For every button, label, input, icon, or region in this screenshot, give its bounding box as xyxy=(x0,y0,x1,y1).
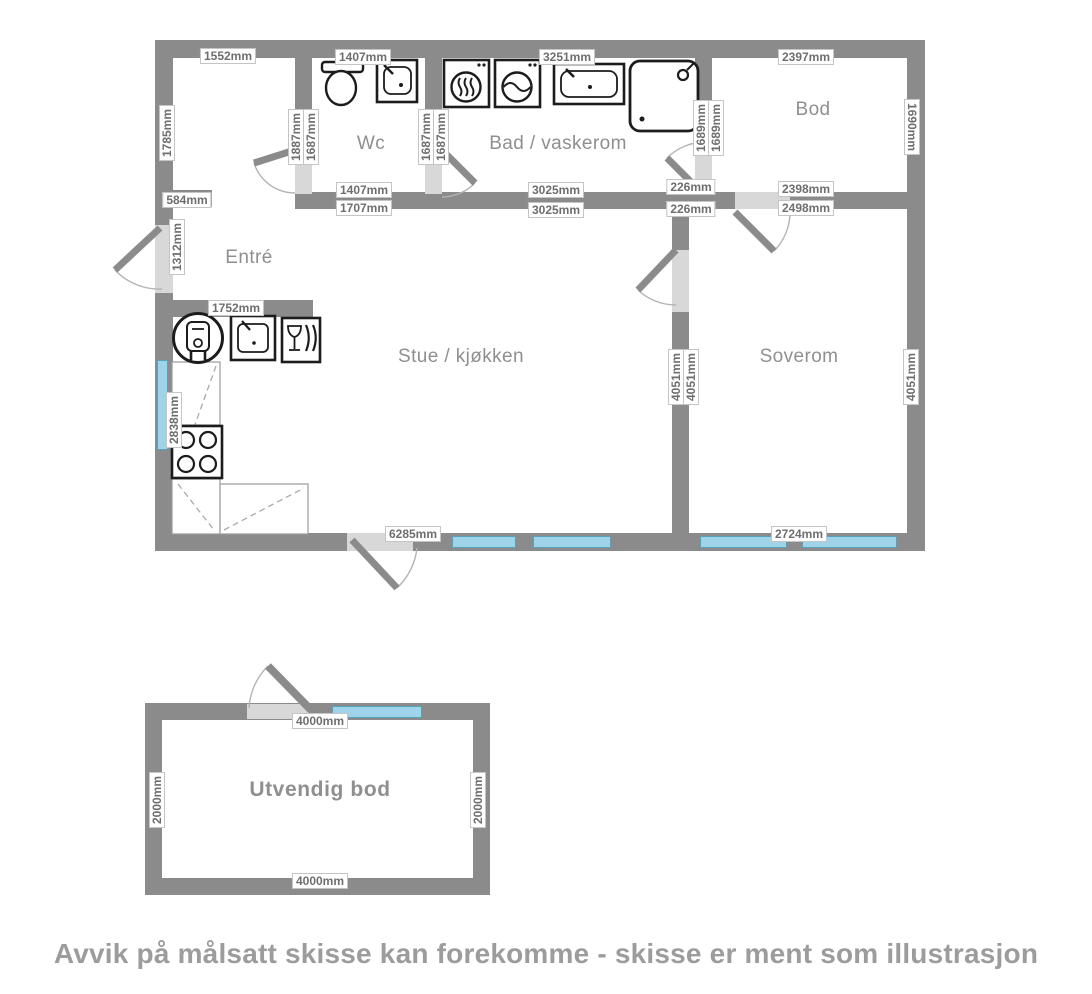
door-leaf xyxy=(735,212,774,251)
dim-wc-right-outer: 1687mm xyxy=(418,109,434,165)
kitchen-sink-icon xyxy=(229,314,277,362)
door-arc xyxy=(115,270,162,289)
door-arc xyxy=(638,290,676,305)
floor-plan: 1552mm 1785mm 584mm 1312mm 1407mm 1887mm… xyxy=(0,0,1092,994)
room-label-soverom: Soverom xyxy=(760,346,839,368)
dim-wc-right-inner: 1687mm xyxy=(433,109,449,165)
dim-bad-bottom-b: 3025mm xyxy=(528,202,584,218)
dim-utvbod-right: 2000mm xyxy=(470,772,486,828)
water-heater-icon xyxy=(170,310,228,372)
door-arc xyxy=(442,183,475,197)
disclaimer-caption: Avvik på målsatt skisse kan forekomme - … xyxy=(0,938,1092,970)
room-label-wc: Wc xyxy=(357,133,385,155)
dim-hall-left: 1785mm xyxy=(159,105,175,161)
door-arc xyxy=(249,666,268,708)
dim-entrance-door: 1312mm xyxy=(169,219,185,275)
bathroom-sink-icon xyxy=(552,62,626,106)
shower-icon xyxy=(627,58,701,134)
room-label-utvendig-bod: Utvendig bod xyxy=(249,778,390,802)
dim-226-a: 226mm xyxy=(666,179,715,195)
dim-bod-bottom-b: 2498mm xyxy=(778,200,834,216)
stue-window-2 xyxy=(533,536,611,548)
dim-entre-stub: 584mm xyxy=(162,192,211,208)
stue-window-1 xyxy=(452,536,516,548)
door-leaf xyxy=(638,250,676,290)
dim-stue-wall-a: 4051mm xyxy=(668,349,684,405)
door-arc xyxy=(774,212,790,251)
stue-exit-door xyxy=(345,535,420,597)
dim-bad-right-inner: 1689mm xyxy=(708,100,724,156)
soverom-door xyxy=(628,245,683,317)
dim-soverom-bottom: 2724mm xyxy=(771,526,827,542)
room-label-bad: Bad / vaskerom xyxy=(489,133,627,155)
dim-wc-left-outer: 1887mm xyxy=(288,109,304,165)
washing-machine-icon xyxy=(493,58,543,110)
dim-kitchen-wall: 2838mm xyxy=(166,392,182,448)
dim-bad-right-outer: 1689mm xyxy=(693,100,709,156)
toilet-icon xyxy=(320,60,368,108)
counter-section xyxy=(172,479,220,534)
room-label-stue: Stue / kjøkken xyxy=(398,346,524,368)
dim-bod-bottom-a: 2398mm xyxy=(778,181,834,197)
dim-bod-top: 2397mm xyxy=(778,49,834,65)
dim-soverom-right: 4051mm xyxy=(903,349,919,405)
dim-wc-left-inner: 1687mm xyxy=(303,109,319,165)
door-leaf xyxy=(352,540,397,588)
dim-stue-bottom: 6285mm xyxy=(385,526,441,542)
room-label-entre: Entré xyxy=(225,247,272,269)
door-leaf xyxy=(268,666,313,712)
dim-hall-top: 1552mm xyxy=(200,48,256,64)
dim-utvbod-bottom: 4000mm xyxy=(292,873,348,889)
dryer-icon xyxy=(442,58,492,110)
dim-wc-bottom-b: 1707mm xyxy=(336,200,392,216)
door-arc xyxy=(397,548,417,588)
door-leaf xyxy=(115,228,160,270)
dim-226-b: 226mm xyxy=(666,201,715,217)
entrance-door xyxy=(105,218,175,300)
dim-stue-wall-b: 4051mm xyxy=(683,349,699,405)
dim-wc-bottom-a: 1407mm xyxy=(336,182,392,198)
dim-bod-right: 1690mm xyxy=(904,99,920,155)
dim-wc-top: 1407mm xyxy=(335,49,391,65)
dim-utvbod-top: 4000mm xyxy=(292,713,348,729)
utvendig-bod-door xyxy=(240,652,322,720)
dim-utvbod-left: 2000mm xyxy=(149,772,165,828)
room-label-bod: Bod xyxy=(795,99,830,121)
dim-bad-bottom-a: 3025mm xyxy=(528,182,584,198)
dim-bad-sink: 3251mm xyxy=(539,49,595,65)
door-arc xyxy=(254,163,295,193)
dim-kitchen-stub: 1752mm xyxy=(208,300,264,316)
dishwasher-icon xyxy=(280,316,322,364)
